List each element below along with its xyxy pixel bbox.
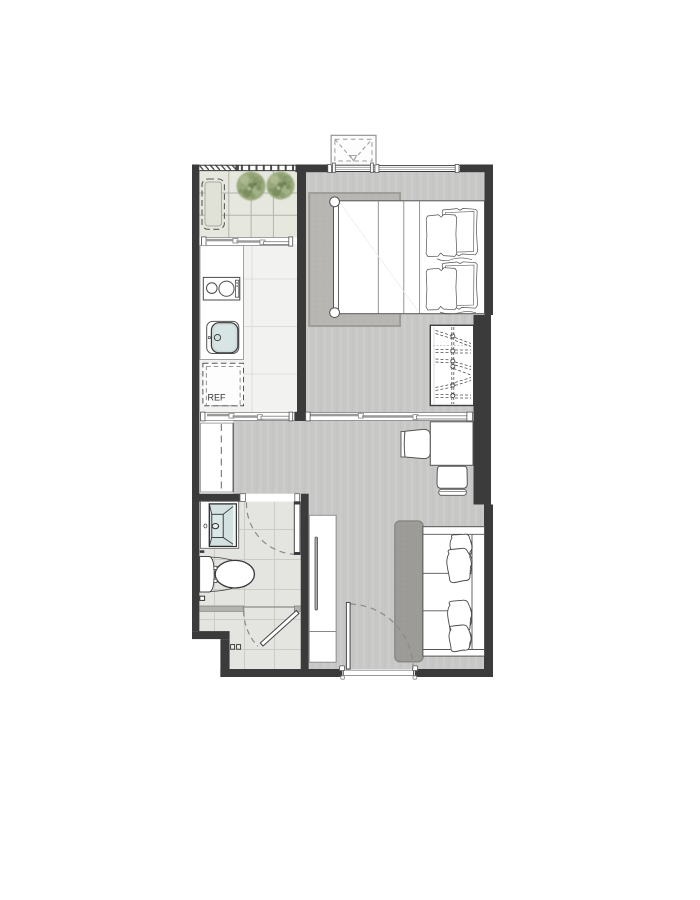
svg-text:REF: REF [208, 393, 227, 403]
